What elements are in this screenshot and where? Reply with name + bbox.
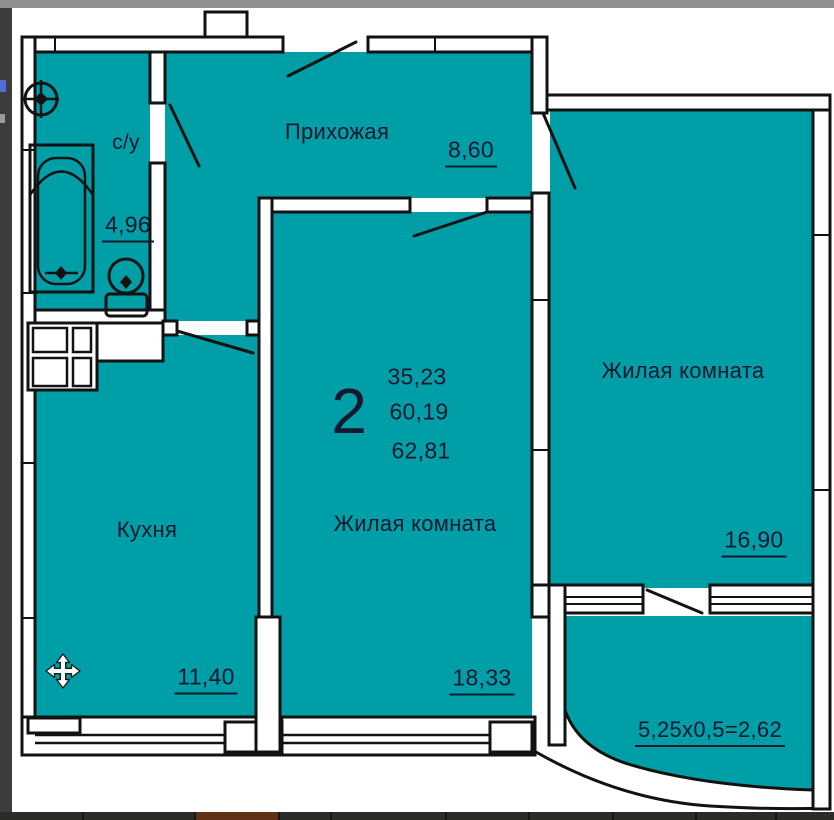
wall-living-center-top-left [272,198,410,212]
pillar-right [490,722,532,752]
left-strip [0,8,12,812]
balcony-sill-band [710,585,813,613]
pillar-kitchen-living [256,617,280,752]
living-center-floor [272,212,532,717]
kitchen-floor [35,335,259,717]
wall-hall-kitchen-left [163,321,177,335]
wall-living-center-top-right [487,198,532,212]
living-right-floor [550,110,813,588]
wall-balcony-left [549,585,565,745]
floorplan-drawing [0,0,834,820]
wall-top-left [22,37,283,52]
wall-top-right [547,95,830,110]
taskbar-strip [0,812,834,820]
top-strip [0,0,834,8]
wall-top-center [368,37,532,52]
counter-block [97,323,163,361]
wall-right [813,110,830,809]
floorplan-screenshot: с/у 4,96 Прихожая 8,60 2 35,23 60,19 62,… [0,0,834,820]
hallway-corridor-floor [165,52,259,321]
balcony-window-band [565,585,643,613]
wall-living-center-left [259,198,272,617]
wall-bathroom-right-lower [150,163,165,312]
wall-step [532,37,547,113]
left-strip-gray-mark [0,114,5,123]
left-strip-blue-mark [0,80,6,92]
taskbar-accent-segment [196,812,278,820]
wall-bathroom-right-upper [150,52,165,103]
pillar-left [28,718,80,733]
wall-rooms-divider [532,193,549,590]
